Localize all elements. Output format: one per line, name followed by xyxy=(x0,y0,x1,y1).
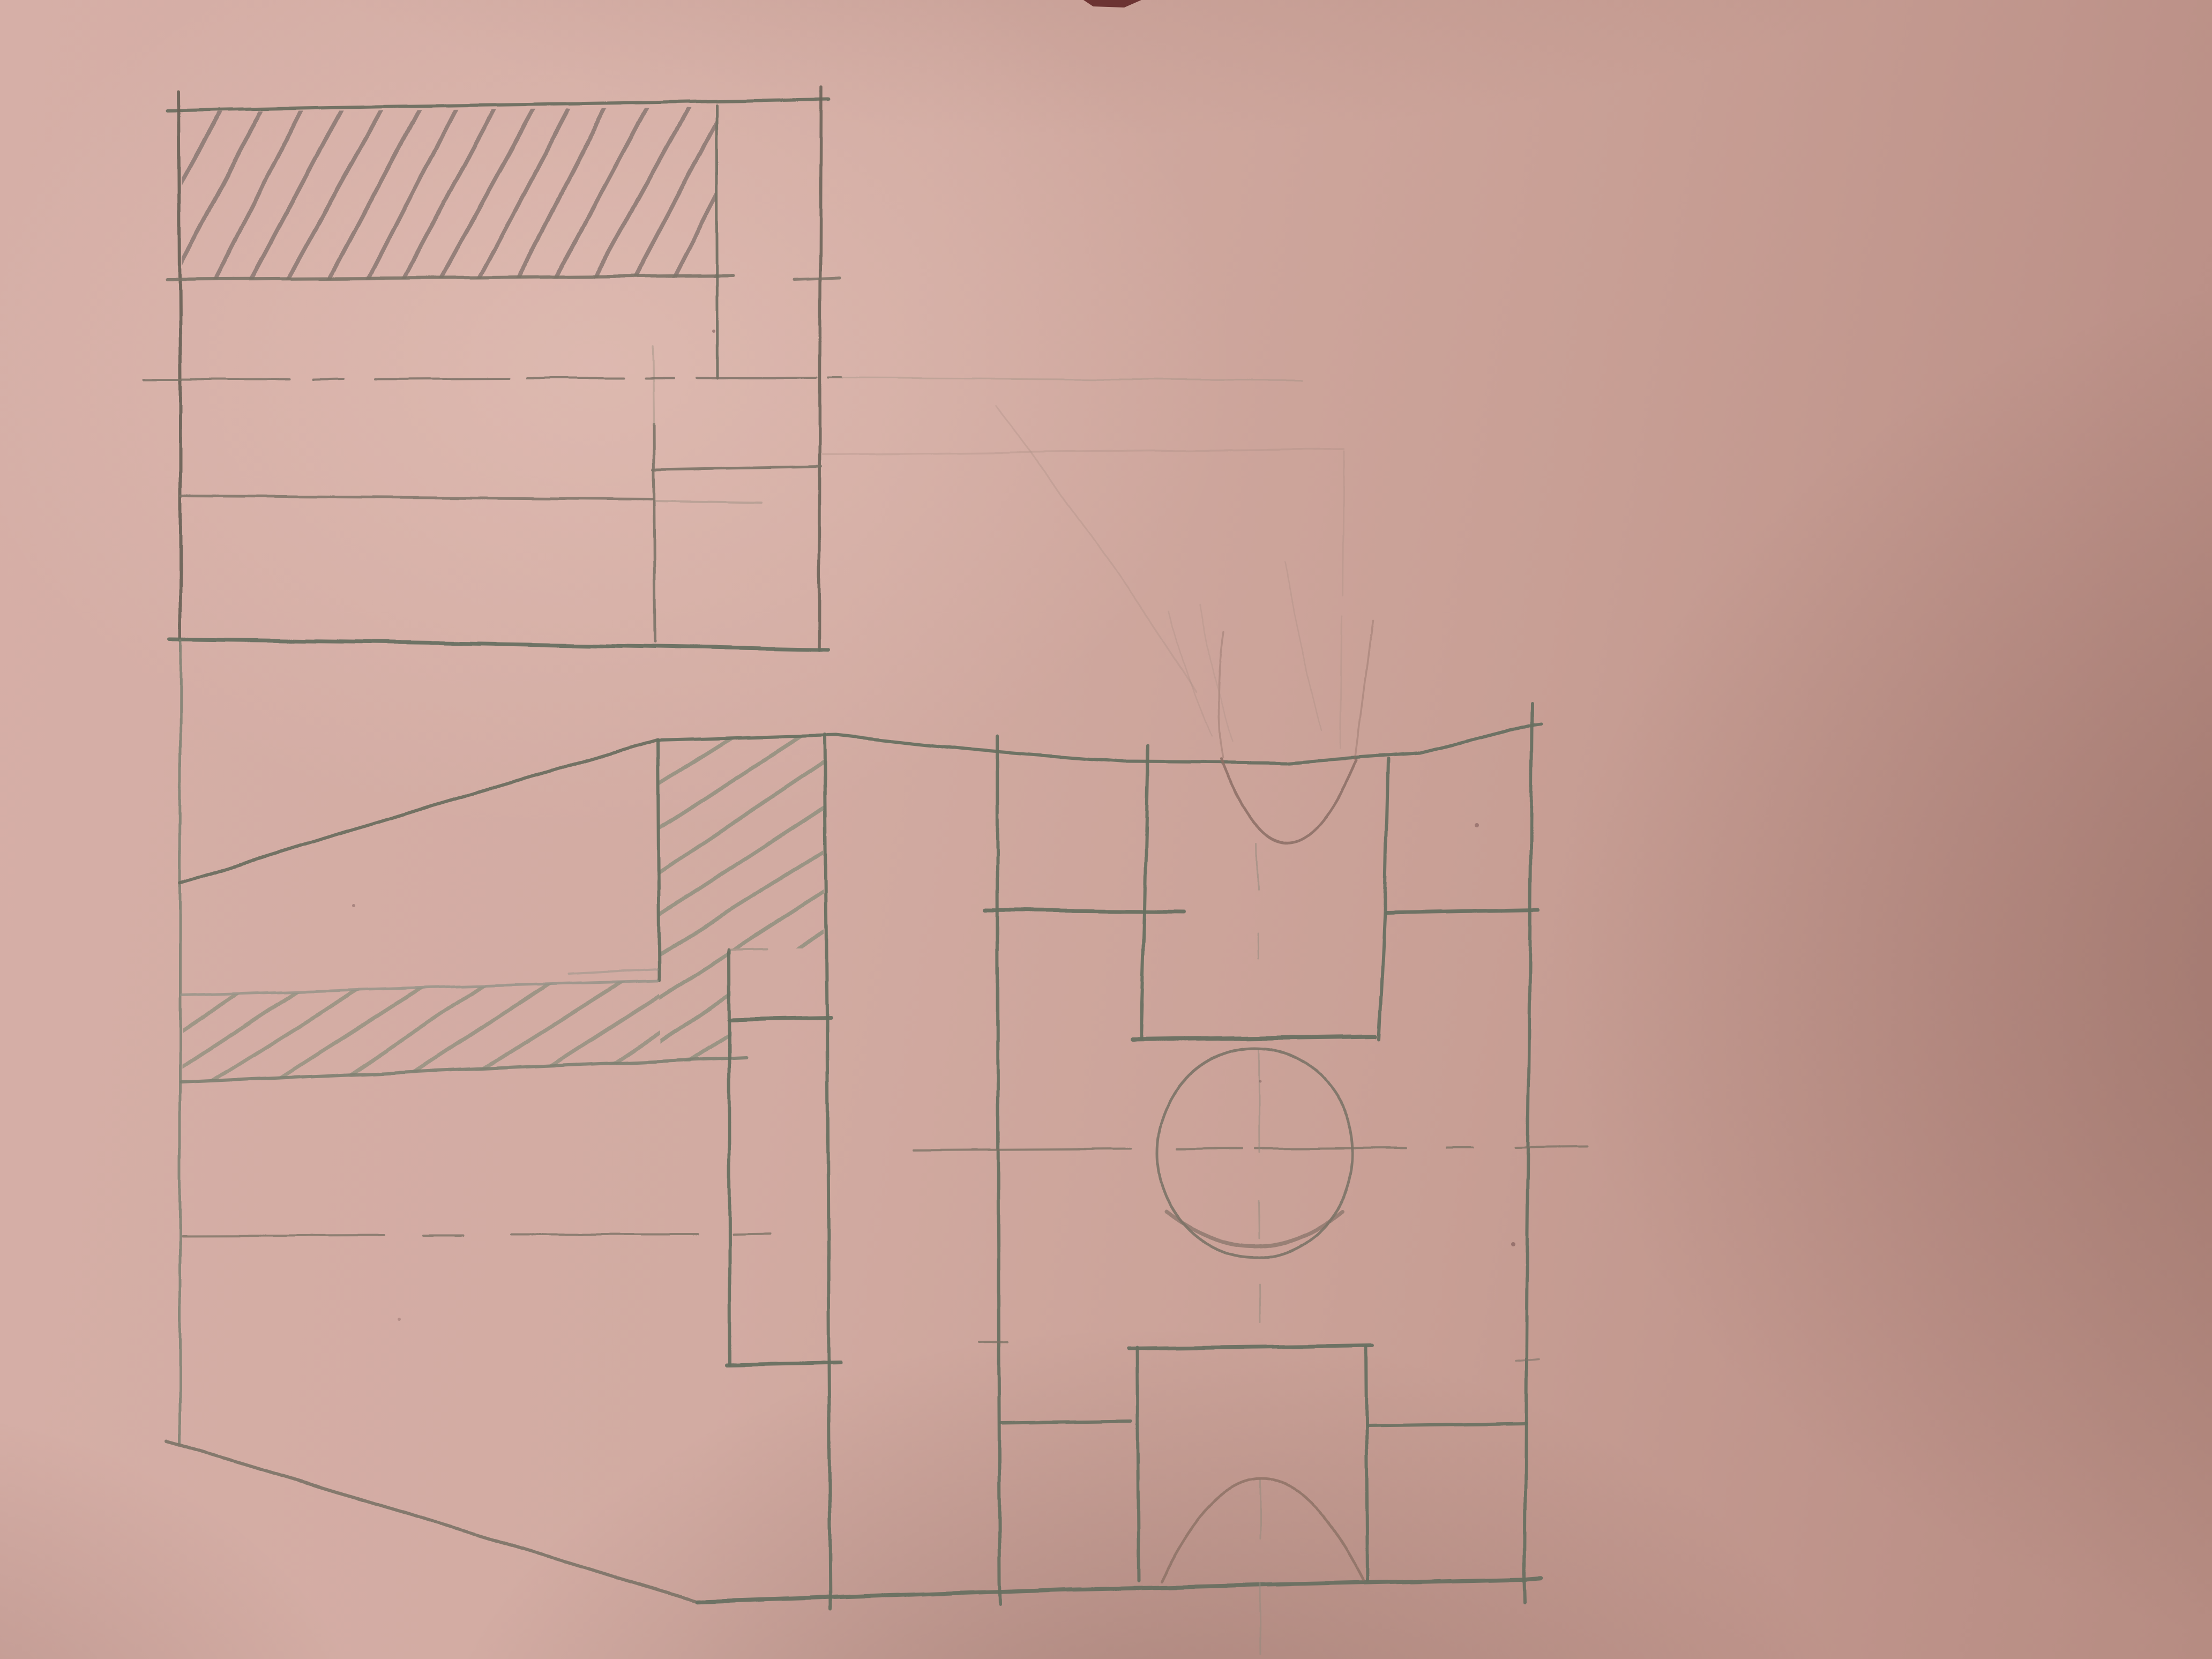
end-view-bottom-shoulder-left xyxy=(1001,1421,1131,1423)
end-view-bottom-slot-top xyxy=(1129,1346,1373,1349)
paper-speck xyxy=(352,904,355,907)
top-view-section-hatch-stroke xyxy=(276,0,563,459)
side-view-left-edge xyxy=(180,641,181,1443)
side-view-band-hatch-stroke xyxy=(63,687,527,991)
top-view-section-hatch-stroke xyxy=(690,134,993,686)
side-view-column-hatch-stroke xyxy=(422,570,789,806)
side-view-notch-vertical xyxy=(729,950,730,1364)
side-view-band-hatch-stroke xyxy=(316,1079,782,1380)
end-view-top-slot-right xyxy=(1379,759,1388,1040)
end-view-vertical-centerline-dash xyxy=(1259,1200,1260,1239)
top-view-section-hatch-stroke xyxy=(763,149,1050,709)
side-view-band-hatch-stroke xyxy=(457,1296,923,1597)
side-view-band-bottom xyxy=(181,1057,746,1082)
end-view-top-shoulder-right xyxy=(1386,910,1538,913)
side-view-band-hatch-stroke xyxy=(265,988,726,1297)
drawing-svg xyxy=(0,0,2212,1659)
side-view-column-hatch-stroke xyxy=(461,630,826,869)
side-view-band-hatch-stroke xyxy=(0,545,430,854)
side-view-band-hatch-stroke xyxy=(81,716,550,1012)
end-view-circle-bottom-double xyxy=(1166,1212,1342,1247)
top-view-section-hatch-stroke xyxy=(0,0,76,210)
side-view-taper-edge xyxy=(180,739,658,883)
side-view-band-hatch-stroke xyxy=(116,766,577,1075)
top-view-top-edge xyxy=(167,100,828,110)
side-view-band-hatch-stroke xyxy=(28,632,495,932)
end-view-horizontal-centerline-dash xyxy=(914,1149,1132,1150)
side-view-band-hatch-stroke xyxy=(363,1165,833,1461)
paper-speck xyxy=(1511,1242,1515,1246)
side-view-band-hatch xyxy=(0,460,923,1597)
side-view-band-top xyxy=(181,981,658,995)
construction-strand-1 xyxy=(996,406,1197,692)
side-view-column-hatch-stroke xyxy=(730,1045,1096,1282)
top-view-step-faint-continuation xyxy=(655,501,761,503)
side-view-column-hatch-stroke xyxy=(441,599,803,842)
side-view-band-hatch-stroke xyxy=(168,850,634,1150)
side-view-centerline xyxy=(182,1234,771,1236)
side-view-column-hatch-stroke xyxy=(362,482,724,724)
construction-box-right-side-dash xyxy=(1340,616,1342,748)
side-view-band-hatch-stroke xyxy=(386,1187,851,1488)
end-view-bottom-arc xyxy=(1162,1478,1364,1581)
top-view-section-hatch-stroke xyxy=(665,113,963,667)
top-view-section-hatch xyxy=(0,0,1109,750)
end-view-horizontal-centerline xyxy=(914,1147,1587,1150)
top-view-inner-vertical-faint xyxy=(653,346,654,424)
side-view-band-hatch-stroke xyxy=(353,1132,817,1435)
side-view-column-hatch-stroke xyxy=(601,838,963,1081)
top-view-section-hatch-stroke xyxy=(644,87,931,648)
construction-box-right-side xyxy=(1340,451,1344,748)
top-view-hatchband-bottom-tick xyxy=(795,278,839,279)
top-view-centerline-faint-extension xyxy=(841,378,1302,380)
end-view-right-edge-tick xyxy=(1515,1359,1539,1362)
side-view-column-hatch-stroke xyxy=(502,693,868,929)
end-view-horizontal-centerline-dash xyxy=(1177,1148,1242,1149)
top-view-section-hatch-stroke xyxy=(121,0,416,376)
end-view-vertical-centerline-dash xyxy=(1260,1584,1261,1654)
end-view-center-hole xyxy=(1157,1048,1353,1258)
end-view-vertical-centerline-dash xyxy=(1258,933,1259,958)
side-view-band-hatch-stroke xyxy=(0,574,452,879)
side-view-band-hatch-stroke xyxy=(44,659,505,967)
side-view-band-top-double-stroke xyxy=(569,969,658,974)
top-view-section-hatch-stroke xyxy=(608,76,901,633)
end-view-bottom-slot-left xyxy=(1137,1348,1139,1581)
side-view-column-hatch-stroke xyxy=(654,927,1020,1164)
side-view-band-hatch-stroke xyxy=(10,604,480,900)
top-view-section-hatch-stroke xyxy=(806,198,1109,750)
side-view-centerline-dash xyxy=(182,1235,385,1236)
side-view-chamfer xyxy=(167,1441,697,1602)
top-view-section-hatch-stroke xyxy=(394,0,681,520)
side-view-column-hatch xyxy=(347,453,1137,1344)
side-view-band-hatch-stroke xyxy=(133,794,597,1098)
top-view-left-edge xyxy=(178,91,180,641)
end-view-horizontal-centerline-dash xyxy=(1255,1148,1406,1148)
side-view-right-long-vertical xyxy=(825,735,830,1609)
side-view-notch-bottom xyxy=(729,1018,831,1020)
side-view-band-hatch-stroke xyxy=(294,1055,764,1350)
side-view-column-hatch-stroke xyxy=(677,951,1039,1194)
side-view-band-hatch-stroke xyxy=(340,1100,801,1409)
top-view-centerline xyxy=(144,378,840,379)
views-bottom-long-edge xyxy=(697,1578,1541,1602)
end-view-top-slot-left xyxy=(1141,746,1148,1040)
top-view-section-hatch-stroke xyxy=(419,0,716,535)
side-view-column-hatch-stroke xyxy=(383,511,748,750)
end-view-top-arc xyxy=(1221,759,1357,843)
top-view-section-hatch-stroke xyxy=(729,139,1022,697)
construction-box-right-side-dash xyxy=(1343,451,1344,596)
photo-edge-red-sliver xyxy=(1083,0,1141,8)
top-view-bottom-edge xyxy=(169,640,828,649)
top-view-section-hatch-stroke xyxy=(569,68,872,619)
paper-speck xyxy=(712,330,715,333)
side-view-band-hatch-stroke xyxy=(242,965,708,1265)
paper-speck xyxy=(1475,823,1479,827)
side-view-column-hatch-stroke xyxy=(347,453,714,689)
side-view-band-hatch-stroke xyxy=(0,517,421,816)
side-view-column-hatch-stroke xyxy=(757,1070,1119,1313)
paper-sheet xyxy=(0,0,2212,1659)
top-view-section-hatch-stroke xyxy=(0,0,267,286)
side-view-band-hatch-stroke xyxy=(412,1206,872,1515)
top-view-section-hatch-stroke xyxy=(210,0,513,421)
end-view-right-edge xyxy=(1525,703,1532,1602)
hatch-layer xyxy=(0,0,1137,1598)
pencil-line-layer xyxy=(144,87,1587,1654)
end-view-bottom-slot-right xyxy=(1366,1347,1368,1581)
top-view-section-hatch-stroke xyxy=(0,0,173,246)
end-view-top-slot-bottom xyxy=(1132,1037,1375,1040)
top-view-section-hatch-stroke xyxy=(482,10,775,567)
top-view-section-hatch-stroke xyxy=(0,0,151,221)
side-view-band-hatch-stroke xyxy=(423,1239,887,1542)
top-view-section-hatch-stroke xyxy=(326,0,630,485)
side-view-bore-end-vertical xyxy=(658,740,660,981)
end-view-left-edge-tick xyxy=(979,1342,1007,1343)
end-view-top-arc-overshoot-right xyxy=(1355,621,1373,759)
top-view-section-hatch-stroke xyxy=(155,0,442,397)
paper-speck xyxy=(1259,1080,1262,1083)
top-view-centerline-faint-extension-dash xyxy=(841,378,1302,380)
construction-strand-4 xyxy=(1284,562,1321,730)
side-view-notch-top-stub xyxy=(730,949,767,950)
end-view-top-shoulder-left xyxy=(985,910,1184,911)
end-view-vertical-centerline-dash xyxy=(1260,1285,1260,1322)
top-view-section-hatch-stroke xyxy=(0,0,291,310)
end-view-left-edge xyxy=(997,736,1000,1604)
construction-strand-2 xyxy=(1169,612,1212,736)
end-view-bottom-shoulder-right xyxy=(1368,1424,1526,1426)
end-view-horizontal-centerline-dash xyxy=(1515,1147,1587,1147)
end-view-vertical-centerline-dash xyxy=(1257,843,1258,890)
top-view-step-line xyxy=(653,467,821,469)
side-view-centerline-dash xyxy=(733,1234,771,1235)
top-view-inner-vertical xyxy=(654,424,655,642)
construction-box-top xyxy=(823,449,1344,454)
side-view-column-hatch-stroke xyxy=(771,1107,1137,1344)
top-view-section-hatch-stroke xyxy=(243,0,538,441)
side-view-step xyxy=(727,1363,841,1365)
side-view-column-hatch-stroke xyxy=(706,1020,1075,1252)
top-view-bore-vertical xyxy=(716,106,718,378)
top-view-centerline-dash xyxy=(375,378,510,379)
side-view-band-hatch-stroke xyxy=(206,905,670,1209)
paper-speck xyxy=(398,1318,401,1321)
top-view-bore-horizontal xyxy=(181,496,653,499)
top-view-section-hatch-stroke xyxy=(0,0,114,215)
top-view-section-hatch-stroke xyxy=(0,0,194,270)
top-view-right-edge xyxy=(819,87,821,650)
end-view-vertical-centerline-dash xyxy=(1259,1049,1259,1152)
side-view-band-hatch-stroke xyxy=(0,460,376,765)
top-view-section-hatch-stroke xyxy=(542,46,840,601)
top-view-centerline-dash xyxy=(313,379,343,379)
side-view-band-hatch-stroke xyxy=(0,488,406,783)
top-view-section-hatch-stroke xyxy=(301,0,597,472)
side-view-band-hatch-stroke xyxy=(189,875,649,1183)
